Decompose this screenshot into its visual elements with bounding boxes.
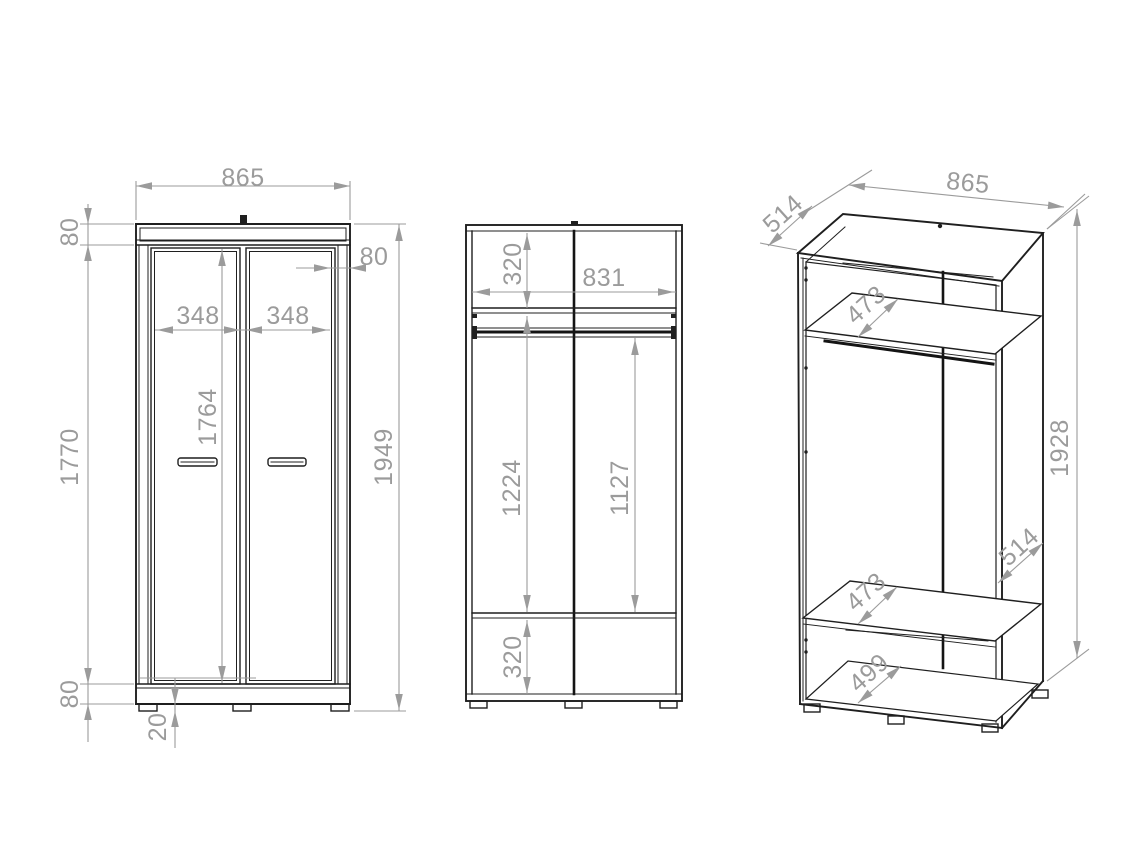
foot: [139, 704, 157, 711]
bottom-panel: [806, 661, 1038, 721]
dim-label-top-section: 320: [499, 242, 527, 285]
dim-label-right-door-width: 348: [266, 302, 309, 330]
front-view: 865 80 1770 80 1949 80: [56, 164, 406, 748]
foot: [660, 701, 677, 708]
technical-drawing-canvas: 865 80 1770 80 1949 80: [0, 0, 1137, 853]
interior-view: 320 831 1224 1127 320: [466, 221, 682, 708]
dim-label-left-door-width: 348: [176, 302, 219, 330]
dim-label-top-depth: 514: [758, 189, 809, 239]
dim-label-persp-height: 1928: [1046, 419, 1074, 477]
dim-label-top-panel-height: 80: [56, 218, 84, 247]
dim-label-persp-width: 865: [945, 167, 991, 199]
upper-shelf: [805, 293, 1041, 354]
perspective-view: 514 865 473 1928 514: [758, 167, 1089, 732]
dim-label-carcass-height: 1770: [56, 428, 84, 486]
dim-label-plinth-height: 80: [56, 680, 84, 709]
top-fitting-dot: [938, 224, 942, 228]
dim-label-left-section: 1224: [498, 459, 526, 517]
foot: [233, 704, 251, 711]
wardrobe-dimension-drawing: 865 80 1770 80 1949 80: [0, 0, 1137, 853]
dim-label-door-height: 1764: [194, 388, 222, 446]
top-center-fitting: [240, 215, 247, 224]
dim-label-front-overall-width: 865: [221, 164, 264, 192]
dim-label-interior-width: 831: [582, 264, 625, 292]
foot: [565, 701, 582, 708]
foot: [888, 716, 904, 724]
perspective-view-linework: [798, 214, 1048, 732]
foot: [331, 704, 349, 711]
front-view-linework: [136, 215, 350, 711]
dim-label-side-reveal: 80: [360, 243, 389, 271]
dim-label-right-section: 1127: [606, 460, 634, 516]
lower-shelf: [803, 581, 1041, 641]
dim-label-foot-height: 20: [144, 713, 172, 742]
dim-label-bottom-section: 320: [499, 635, 527, 678]
dim-label-total-height: 1949: [370, 428, 398, 486]
foot: [470, 701, 487, 708]
